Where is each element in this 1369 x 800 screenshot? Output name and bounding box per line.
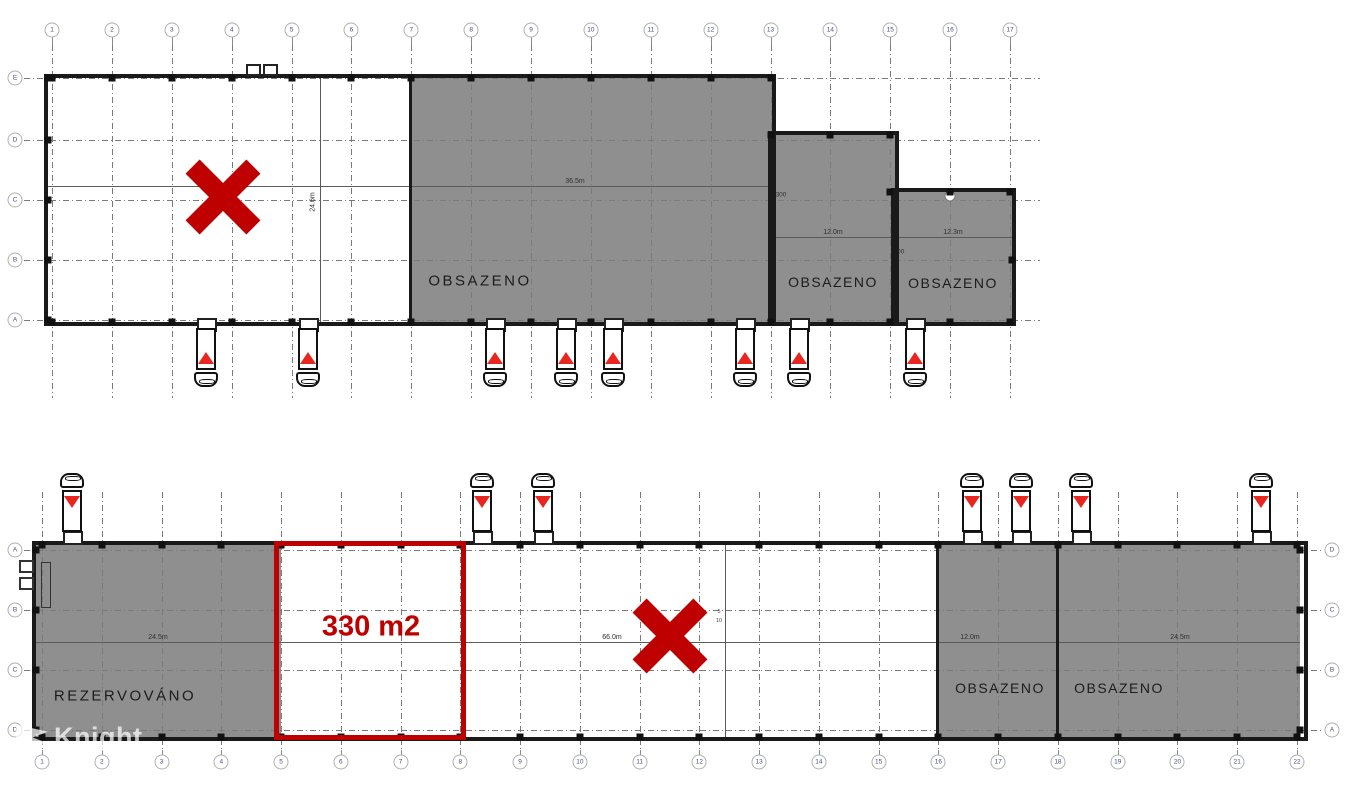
truck-icon (1249, 470, 1275, 532)
axis-bubble-top-col-4: 4 (224, 23, 239, 38)
grid-col-stub-top-11 (651, 37, 652, 45)
truck-icon (483, 328, 509, 390)
axis-bubble-bottom-row-right-B: B (1325, 663, 1340, 678)
wall-column-square (468, 75, 475, 82)
truck-icon (903, 328, 929, 390)
wall-column-square (576, 542, 583, 549)
axis-bubble-top-row-E: E (8, 71, 23, 86)
wall-column-square (158, 734, 165, 741)
truck-cab (470, 473, 494, 488)
truck-cab (1249, 473, 1273, 488)
wall-column-square (827, 132, 834, 139)
wall-column-square (995, 734, 1002, 741)
axis-bubble-top-col-15: 15 (883, 23, 898, 38)
wall-column-square (1174, 542, 1181, 549)
grid-col-stub-top-16 (950, 37, 951, 45)
truck-icon (960, 470, 986, 532)
axis-bubble-top-col-2: 2 (104, 23, 119, 38)
floor-plan-canvas: 36.5m 24.6m 12.0m 12.3m 300 300 OBSAZENO… (0, 0, 1369, 800)
watermark: Knight (16, 722, 142, 753)
top-unit-label-occupied-1: OBSAZENO (428, 273, 531, 290)
grid-col-stub-top-10 (591, 37, 592, 45)
axis-bubble-top-row-D: D (8, 133, 23, 148)
grid-col-stub-top-5 (292, 37, 293, 45)
wall-column-square (168, 319, 175, 326)
truck-icon (194, 328, 220, 390)
wall-column-square (1234, 542, 1241, 549)
wall-column-square (636, 734, 643, 741)
bottom-interior-wall-2 (1056, 545, 1059, 737)
wall-column-square (947, 319, 954, 326)
grid-col-stub-top-1 (52, 37, 53, 45)
axis-bubble-top-col-9: 9 (524, 23, 539, 38)
axis-bubble-bottom-col-2: 2 (94, 755, 109, 770)
wall-column-square (887, 132, 894, 139)
grid-col-stub-top-7 (411, 37, 412, 45)
axis-bubble-top-col-6: 6 (344, 23, 359, 38)
wall-column-square (756, 542, 763, 549)
wall-column-square (647, 75, 654, 82)
truck-icon (470, 470, 496, 532)
axis-bubble-bottom-col-1: 1 (35, 755, 50, 770)
top-building-outline-step2 (891, 188, 1016, 326)
wall-column-square (45, 257, 52, 264)
wall-column-square (218, 734, 225, 741)
truck-direction-arrow-icon (1013, 496, 1029, 508)
truck-direction-arrow-icon (535, 496, 551, 508)
axis-bubble-bottom-col-22: 22 (1289, 755, 1304, 770)
grid-col-stub-top-12 (711, 37, 712, 45)
wall-column-square (767, 132, 774, 139)
grid-col-stub-top-14 (830, 37, 831, 45)
wall-column-square (228, 75, 235, 82)
wall-column-square (1054, 542, 1061, 549)
wall-column-square (45, 137, 52, 144)
axis-bubble-bottom-col-19: 19 (1110, 755, 1125, 770)
truck-icon (733, 328, 759, 390)
wall-column-square (576, 734, 583, 741)
wall-column-square (528, 319, 535, 326)
dock-door (63, 531, 83, 545)
axis-bubble-bottom-col-18: 18 (1050, 755, 1065, 770)
axis-bubble-bottom-row-right-A: A (1325, 723, 1340, 738)
dock-door (534, 531, 554, 545)
wall-column-square (587, 319, 594, 326)
wall-column-square (33, 667, 40, 674)
axis-bubble-top-col-16: 16 (943, 23, 958, 38)
wall-column-square (1007, 319, 1014, 326)
wall-column-square (468, 319, 475, 326)
top-interior-wall (409, 78, 412, 322)
axis-bubble-bottom-row-right-D: D (1325, 543, 1340, 558)
truck-direction-arrow-icon (474, 496, 490, 508)
bottom-interior-wall-1 (936, 545, 939, 737)
axis-bubble-top-col-14: 14 (823, 23, 838, 38)
wall-column-square (587, 75, 594, 82)
wall-column-square (288, 319, 295, 326)
wall-column-square (1234, 734, 1241, 741)
truck-direction-arrow-icon (791, 352, 807, 364)
wall-column-square (647, 319, 654, 326)
grid-col-stub-top-3 (172, 37, 173, 45)
wall-column-square (33, 547, 40, 554)
wall-column-square (1297, 547, 1304, 554)
wall-column-square (408, 75, 415, 82)
wall-column-square (39, 542, 46, 549)
axis-bubble-top-col-17: 17 (1003, 23, 1018, 38)
bottom-left-stair-mark-2 (19, 577, 34, 590)
grid-col-stub-top-13 (771, 37, 772, 45)
wall-column-square (45, 75, 52, 82)
bottom-unit-label-reserved: REZERVOVÁNO (54, 688, 196, 705)
wall-column-square (408, 319, 415, 326)
axis-bubble-bottom-col-10: 10 (572, 755, 587, 770)
bottom-unit-label-occupied-2: OBSAZENO (1074, 680, 1164, 696)
truck-cab (1069, 473, 1093, 488)
wall-column-square (348, 319, 355, 326)
wall-column-square (288, 75, 295, 82)
wall-column-square (887, 319, 894, 326)
axis-bubble-top-col-12: 12 (703, 23, 718, 38)
axis-bubble-bottom-col-8: 8 (453, 755, 468, 770)
truck-cab (554, 372, 578, 387)
watermark-text: Knight (54, 722, 142, 753)
truck-cab (483, 372, 507, 387)
truck-icon (60, 470, 86, 532)
grid-col-stub-top-17 (1010, 37, 1011, 45)
wall-column-square (168, 75, 175, 82)
truck-direction-arrow-icon (737, 352, 753, 364)
grid-col-stub-top-15 (890, 37, 891, 45)
axis-bubble-top-row-C: C (8, 193, 23, 208)
axis-bubble-bottom-col-5: 5 (274, 755, 289, 770)
axis-bubble-bottom-row-right-C: C (1325, 603, 1340, 618)
dock-door (1012, 531, 1032, 545)
truck-cab (194, 372, 218, 387)
wall-column-square (995, 542, 1002, 549)
axis-bubble-bottom-col-20: 20 (1170, 755, 1185, 770)
axis-bubble-top-row-A: A (8, 313, 23, 328)
wall-column-square (875, 734, 882, 741)
axis-bubble-bottom-row-left-A: A (8, 543, 23, 558)
grid-col-stub-top-6 (351, 37, 352, 45)
grid-col-stub-top-9 (531, 37, 532, 45)
axis-bubble-bottom-row-left-B: B (8, 603, 23, 618)
wall-column-square (1114, 734, 1121, 741)
wall-column-square (875, 542, 882, 549)
truck-direction-arrow-icon (1253, 496, 1269, 508)
wall-column-square (1054, 734, 1061, 741)
top-entrance-canopy-1 (246, 64, 261, 76)
wall-column-square (935, 734, 942, 741)
truck-direction-arrow-icon (300, 352, 316, 364)
available-unit-area-label: 330 m2 (322, 611, 420, 644)
dock-door (963, 531, 983, 545)
unavailable-cross-icon-bottom (631, 594, 709, 678)
truck-cab (296, 372, 320, 387)
axis-bubble-bottom-row-left-C: C (8, 663, 23, 678)
truck-direction-arrow-icon (964, 496, 980, 508)
wall-column-square (1297, 667, 1304, 674)
bottom-unit-label-occupied-1: OBSAZENO (955, 680, 1045, 696)
wall-column-square (815, 542, 822, 549)
wall-column-square (158, 542, 165, 549)
truck-icon (1069, 470, 1095, 532)
wall-column-square (1009, 257, 1016, 264)
grid-col-stub-top-4 (232, 37, 233, 45)
wall-column-square (108, 75, 115, 82)
wall-column-square (33, 607, 40, 614)
truck-direction-arrow-icon (1073, 496, 1089, 508)
axis-bubble-top-col-10: 10 (583, 23, 598, 38)
truck-icon (531, 470, 557, 532)
wall-column-square (45, 317, 52, 324)
axis-bubble-top-col-7: 7 (404, 23, 419, 38)
axis-bubble-bottom-col-21: 21 (1230, 755, 1245, 770)
wall-column-square (108, 319, 115, 326)
top-entrance-canopy-2 (263, 64, 278, 76)
wall-column-square (1114, 542, 1121, 549)
wall-column-square (947, 189, 954, 196)
wall-column-square (815, 734, 822, 741)
axis-bubble-bottom-col-13: 13 (752, 755, 767, 770)
wall-column-square (636, 542, 643, 549)
wall-column-square (528, 75, 535, 82)
axis-bubble-bottom-col-16: 16 (931, 755, 946, 770)
dock-door (1252, 531, 1272, 545)
wall-column-square (827, 319, 834, 326)
axis-bubble-bottom-col-3: 3 (154, 755, 169, 770)
wall-column-square (517, 734, 524, 741)
wall-column-square (98, 542, 105, 549)
axis-bubble-top-col-8: 8 (464, 23, 479, 38)
wall-column-square (218, 542, 225, 549)
truck-cab (1009, 473, 1033, 488)
truck-direction-arrow-icon (605, 352, 621, 364)
unavailable-cross-icon-top (184, 155, 262, 239)
wall-column-square (228, 319, 235, 326)
wall-column-square (1297, 727, 1304, 734)
wall-column-square (1297, 607, 1304, 614)
watermark-logo-icon (16, 725, 48, 751)
truck-icon (554, 328, 580, 390)
top-unit-label-occupied-2: OBSAZENO (788, 274, 878, 290)
axis-bubble-bottom-col-6: 6 (333, 755, 348, 770)
wall-column-square (935, 542, 942, 549)
wall-column-square (517, 542, 524, 549)
wall-column-square (1293, 734, 1300, 741)
bottom-left-stair-mark-1 (19, 560, 34, 573)
wall-column-square (1174, 734, 1181, 741)
axis-bubble-bottom-col-11: 11 (632, 755, 647, 770)
wall-column-square (756, 734, 763, 741)
truck-icon (787, 328, 813, 390)
axis-bubble-bottom-col-7: 7 (393, 755, 408, 770)
truck-direction-arrow-icon (558, 352, 574, 364)
truck-icon (601, 328, 627, 390)
truck-cab (733, 372, 757, 387)
axis-bubble-top-col-11: 11 (643, 23, 658, 38)
axis-bubble-top-col-5: 5 (284, 23, 299, 38)
dock-door (473, 531, 493, 545)
wall-column-square (707, 75, 714, 82)
truck-cab (787, 372, 811, 387)
grid-col-stub-top-2 (112, 37, 113, 45)
truck-direction-arrow-icon (64, 496, 80, 508)
axis-bubble-bottom-col-17: 17 (991, 755, 1006, 770)
axis-bubble-bottom-col-4: 4 (214, 755, 229, 770)
wall-column-square (887, 189, 894, 196)
truck-cab (531, 473, 555, 488)
wall-column-square (767, 75, 774, 82)
axis-bubble-bottom-col-9: 9 (513, 755, 528, 770)
wall-column-square (348, 75, 355, 82)
dock-door (1072, 531, 1092, 545)
wall-column-square (45, 197, 52, 204)
truck-cab (60, 473, 84, 488)
truck-direction-arrow-icon (907, 352, 923, 364)
axis-bubble-top-col-3: 3 (164, 23, 179, 38)
axis-bubble-bottom-col-12: 12 (692, 755, 707, 770)
wall-column-square (767, 319, 774, 326)
truck-direction-arrow-icon (487, 352, 503, 364)
axis-bubble-top-row-B: B (8, 253, 23, 268)
truck-icon (1009, 470, 1035, 532)
axis-bubble-bottom-col-14: 14 (811, 755, 826, 770)
wall-column-square (1007, 189, 1014, 196)
truck-cab (601, 372, 625, 387)
truck-cab (960, 473, 984, 488)
grid-col-stub-top-8 (471, 37, 472, 45)
truck-direction-arrow-icon (198, 352, 214, 364)
axis-bubble-top-col-1: 1 (45, 23, 60, 38)
top-building-outline-step1 (768, 131, 899, 326)
bottom-left-door-mark (41, 562, 51, 608)
wall-column-square (696, 734, 703, 741)
axis-bubble-top-col-13: 13 (763, 23, 778, 38)
axis-bubble-bottom-col-15: 15 (871, 755, 886, 770)
wall-column-square (707, 319, 714, 326)
wall-column-square (696, 542, 703, 549)
truck-cab (903, 372, 927, 387)
top-unit-label-occupied-3: OBSAZENO (908, 275, 998, 291)
truck-icon (296, 328, 322, 390)
